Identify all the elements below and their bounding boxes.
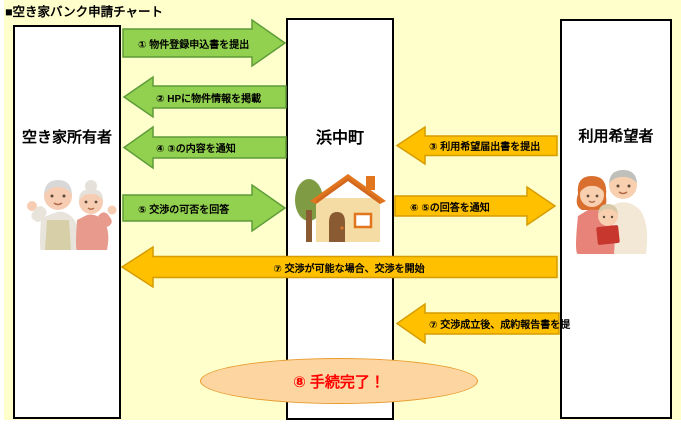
- column-applicant-label: 利用希望者: [562, 125, 670, 146]
- arrow-step-4: ④ ③の内容を通知: [122, 125, 287, 170]
- arrow-step-3-label: ③ 利用希望届出書を提出: [395, 125, 558, 166]
- arrow-step-5-label: ⑤ 交渉の可否を回答: [122, 183, 287, 233]
- arrow-step-7-long: ⑦ 交渉が可能な場合、交渉を開始: [120, 245, 558, 289]
- arrow-step-1: ① 物件登録申込書を提出: [122, 18, 287, 68]
- family-illustration: [570, 168, 652, 254]
- completion-label: ⑧ 手続完了！: [293, 371, 385, 392]
- column-owner: 空き家所有者: [13, 25, 121, 419]
- arrow-step-4-label: ④ ③の内容を通知: [122, 125, 287, 170]
- arrow-step-6-label: ⑥ ⑤の回答を通知: [394, 185, 557, 227]
- arrow-step-7-report-label: ⑦ 交渉成立後、成約報告書を提: [395, 302, 560, 345]
- arrow-step-2: ② HPに物件情報を掲載: [122, 75, 287, 119]
- arrow-step-7-long-label: ⑦ 交渉が可能な場合、交渉を開始: [120, 245, 558, 289]
- completion-ellipse: ⑧ 手続完了！: [200, 358, 478, 404]
- arrow-step-2-label: ② HPに物件情報を掲載: [122, 75, 287, 119]
- elderly-couple-illustration: [19, 172, 117, 250]
- arrow-step-3: ③ 利用希望届出書を提出: [395, 125, 558, 166]
- arrow-step-1-label: ① 物件登録申込書を提出: [122, 18, 287, 68]
- flowchart-canvas: ■空き家バンク申請チャート 空き家所有者 浜中町: [0, 0, 681, 425]
- column-applicant: 利用希望者: [560, 19, 672, 419]
- house-illustration: [294, 170, 388, 244]
- arrow-step-7-report: ⑦ 交渉成立後、成約報告書を提: [395, 302, 560, 345]
- column-town-label: 浜中町: [288, 124, 392, 148]
- arrow-step-6: ⑥ ⑤の回答を通知: [394, 185, 557, 227]
- arrow-step-5: ⑤ 交渉の可否を回答: [122, 183, 287, 233]
- column-owner-label: 空き家所有者: [15, 126, 119, 147]
